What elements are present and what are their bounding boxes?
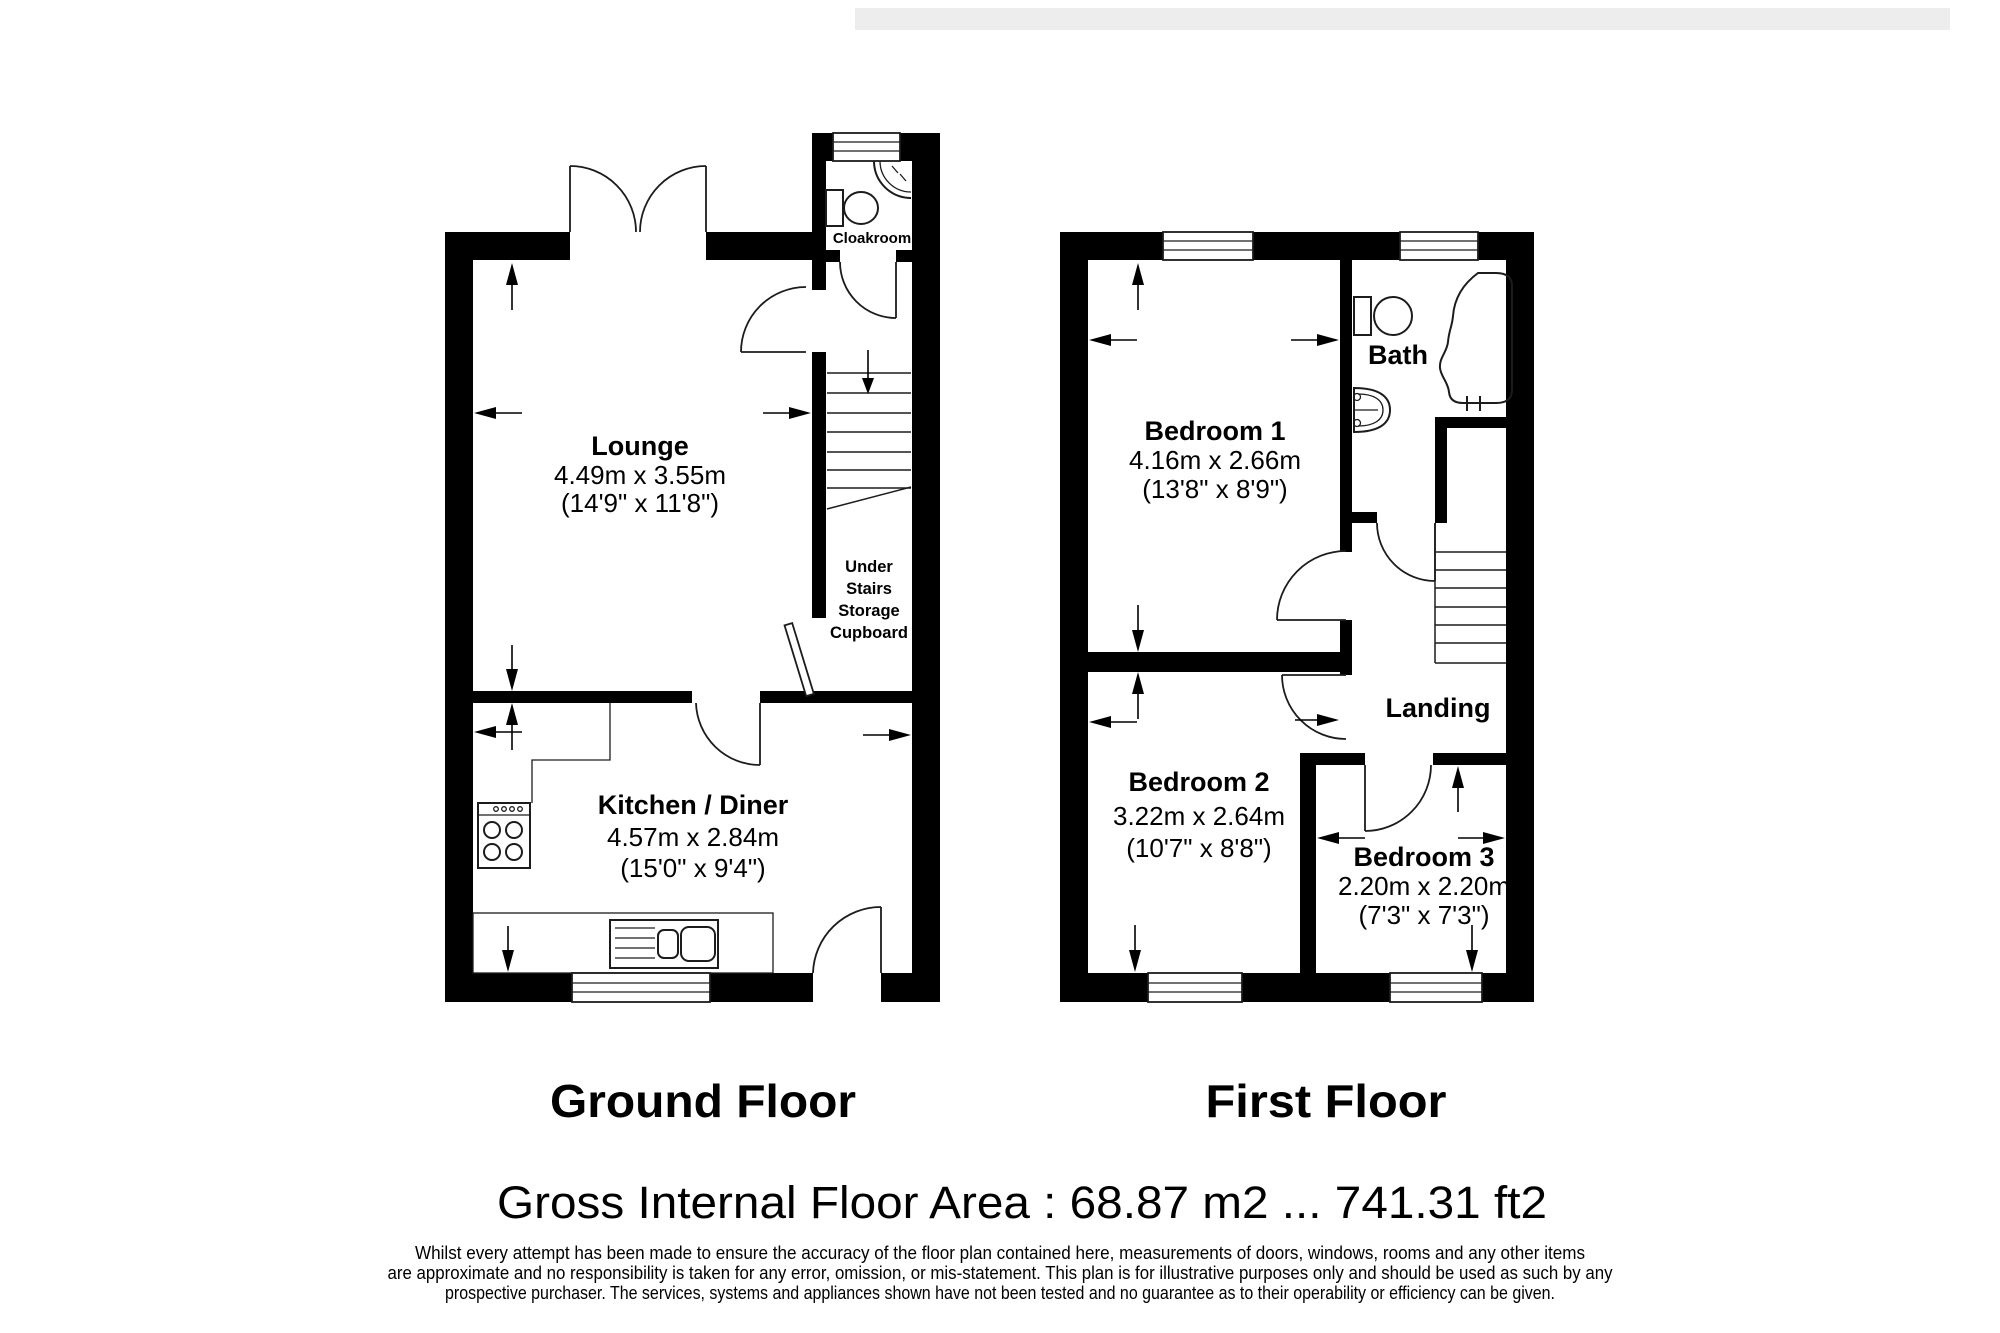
cupboard-label-3: Storage: [838, 602, 899, 620]
landing-label: Landing: [1386, 693, 1491, 723]
floorplan-image: Lounge 4.49m x 3.55m (14'9" x 11'8") Kit…: [0, 0, 2000, 1333]
bedroom3-dim-imperial: (7'3" x 7'3"): [1359, 900, 1490, 930]
kitchen-dim-imperial: (15'0" x 9'4"): [620, 853, 765, 883]
disclaimer-line-1: Whilst every attempt has been made to en…: [415, 1242, 1585, 1263]
bedroom1-dim-metric: 4.16m x 2.66m: [1129, 445, 1301, 475]
bedroom1-window: [1163, 232, 1253, 260]
disclaimer-line-2: are approximate and no responsibility is…: [388, 1262, 1614, 1283]
bath-label: Bath: [1368, 340, 1428, 370]
kitchen-label: Kitchen / Diner: [598, 790, 789, 820]
floorplan-svg: Lounge 4.49m x 3.55m (14'9" x 11'8") Kit…: [0, 0, 2000, 1333]
lounge-label: Lounge: [591, 431, 688, 461]
cloakroom-label: Cloakroom: [833, 230, 911, 247]
background: [0, 0, 2000, 1333]
cupboard-label-2: Stairs: [846, 580, 892, 598]
lounge-dim-metric: 4.49m x 3.55m: [554, 460, 726, 490]
ground-floor-title: Ground Floor: [550, 1075, 856, 1127]
top-gray-strip: [855, 8, 1950, 30]
bedroom2-dim-metric: 3.22m x 2.64m: [1113, 801, 1285, 831]
bedroom1-dim-imperial: (13'8" x 8'9"): [1142, 474, 1287, 504]
bedroom1-label: Bedroom 1: [1144, 416, 1285, 446]
kitchen-window: [572, 973, 710, 1002]
bedroom2-label: Bedroom 2: [1128, 767, 1269, 797]
bedroom3-window: [1390, 973, 1482, 1002]
lounge-dim-imperial: (14'9" x 11'8"): [561, 488, 719, 518]
kitchen-dim-metric: 4.57m x 2.84m: [607, 822, 779, 852]
cupboard-label-4: Cupboard: [830, 624, 908, 642]
cupboard-label-1: Under: [845, 558, 893, 576]
bath-window: [1400, 232, 1478, 260]
cloakroom-window: [833, 133, 900, 161]
bedroom3-dim-metric: 2.20m x 2.20m: [1338, 871, 1510, 901]
first-floor-title: First Floor: [1206, 1075, 1447, 1127]
bedroom2-dim-imperial: (10'7" x 8'8"): [1126, 833, 1271, 863]
bedroom3-label: Bedroom 3: [1353, 842, 1494, 872]
gross-area-text: Gross Internal Floor Area : 68.87 m2 ...…: [497, 1177, 1547, 1228]
bedroom2-window: [1148, 973, 1242, 1002]
disclaimer-line-3: prospective purchaser. The services, sys…: [445, 1282, 1555, 1303]
